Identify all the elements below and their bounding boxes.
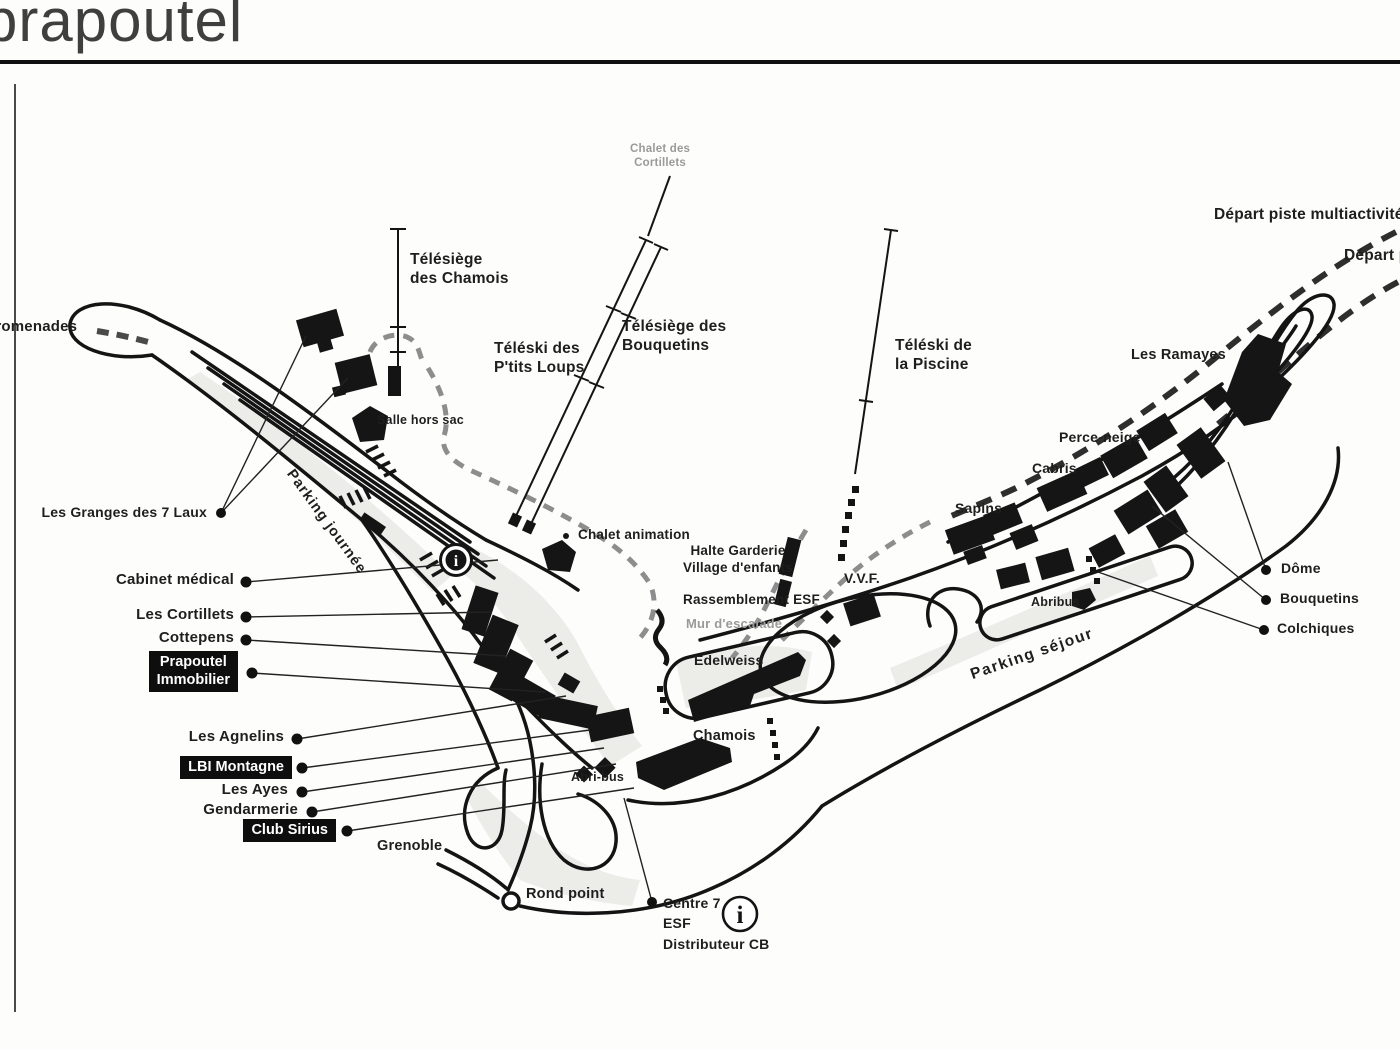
label-line: Bouquetins [622,336,726,355]
building-footprint [636,738,732,790]
bullet [247,668,258,679]
bullet [1261,595,1271,605]
label-line: ESF [663,913,769,933]
label-cabris: Cabris [1032,460,1077,478]
building-footprint [820,610,834,624]
label-telesiege-chamois: Télésiège des Chamois [410,250,509,289]
bullet [307,807,318,818]
leader [246,612,492,617]
bullet [241,612,252,623]
trail-dot [1090,567,1096,573]
label-cottepens: Cottepens [159,629,234,648]
label-chalet-animation: Chalet animation [578,527,690,544]
label-line: Village d'enfants [672,560,804,577]
label-les-granges: Les Granges des 7 Laux [42,504,207,522]
label-cabinet-medical: Cabinet médical [116,571,234,590]
label-teleski-piscine: Téléski de la Piscine [895,336,972,375]
mur-escalade-wall [655,610,666,665]
label-depart-piste: Départ piste [1344,246,1400,265]
bullet [297,763,308,774]
bullet [216,508,226,518]
leader [302,730,590,768]
label-abri-bus: Abri-bus [571,770,624,786]
lift-station [388,366,401,396]
trail-dot [840,540,847,547]
leader [302,748,604,792]
info-icon-glyph: i [454,553,459,570]
label-salle-hors-sac: Salle hors sac [377,413,464,429]
bullet [297,787,308,798]
label-centre7: Centre 7 ESF Distributeur CB [663,893,769,954]
label-sapins: Sapins [955,500,1002,518]
trail-dot [842,526,849,533]
bullet [241,635,252,646]
label-mur-escalade: Mur d'escalade [686,616,782,632]
trail-dot [848,499,855,506]
label-chalet-cortillets: Chalet des Cortillets [630,142,690,171]
label-grenoble: Grenoble [377,837,442,855]
trail-dot [852,486,859,493]
bullet [1259,625,1269,635]
label-edelweiss: Edelweiss [694,652,764,670]
label-line: Cortillets [630,156,690,170]
building-footprint [996,563,1030,590]
village-map-page: prapoutel [0,0,1400,1050]
label-telesiege-bouquetins: Télésiège des Bouquetins [622,317,726,356]
label-abribus: Abribus [1031,595,1080,611]
bullet [647,897,657,907]
label-line: Halte Garderie [672,543,804,560]
label-depart-piste-multiactivite: Départ piste multiactivité [1214,205,1400,224]
road [70,304,160,357]
label-line: Téléski des [494,339,584,358]
label-line: Prapoutel [157,653,230,671]
building-footprint [1035,548,1074,580]
trail-dot [660,697,666,703]
lift-tick [589,244,668,388]
label-les-agnelins: Les Agnelins [189,728,284,747]
label-perce-neige: Perce-neige [1059,429,1141,447]
label-teleski-ptits-loups: Téléski des P'tits Loups [494,339,584,378]
trail-dot [663,708,669,714]
label-line: Télésiège des [622,317,726,336]
label-line: des Chamois [410,269,509,288]
building-footprint [542,540,576,572]
label-chamois: Chamois [693,727,756,745]
road [438,864,498,898]
label-line: P'tits Loups [494,358,584,377]
label-les-ramayes: Les Ramayes [1131,346,1226,364]
label-line: Téléski de [895,336,972,355]
label-prapoutel-immobilier: Prapoutel Immobilier [149,651,238,692]
promenades-path [97,331,152,343]
label-line: Immobilier [157,671,230,689]
bullet [241,577,252,588]
building-footprint [1224,334,1292,426]
label-line: Distributeur CB [663,934,769,954]
parking-row [208,368,478,554]
label-line: Chalet des [630,142,690,156]
building-footprint [1203,385,1230,411]
trail-dot [838,554,845,561]
leader [1228,462,1266,570]
label-colchiques: Colchiques [1277,620,1354,638]
label-bouquetins: Bouquetins [1280,590,1359,608]
trail-dot [774,754,780,760]
label-lbi-montagne: LBI Montagne [180,756,292,779]
lift-station [508,512,522,527]
trail-dot [770,730,776,736]
label-vvf: V.V.F. [844,570,880,588]
trail-dot [767,718,773,724]
lift-station [522,519,536,534]
trail-dot [772,742,778,748]
label-promenades: promenades [0,318,77,337]
info-icon-village: i [441,545,472,576]
trail-dot [1094,578,1100,584]
trail-dot [1086,556,1092,562]
bullet [292,734,303,745]
label-gendarmerie: Gendarmerie [203,801,298,820]
trail-dot [657,686,663,692]
rond-point-circle [503,893,519,909]
trail-dot [845,512,852,519]
label-dome: Dôme [1281,560,1321,578]
label-line: Télésiège [410,250,509,269]
leader [246,640,506,656]
stairs [366,446,396,476]
label-line: Centre 7 [663,893,769,913]
label-line: la Piscine [895,355,972,374]
label-les-ayes: Les Ayes [222,781,288,800]
label-rond-point: Rond point [526,885,605,903]
map-dot [563,533,569,539]
leader [297,696,566,739]
lift-tick [574,237,653,381]
lift-line-piscine [855,230,891,474]
bullet [1261,565,1271,575]
label-les-cortillets: Les Cortillets [136,606,234,625]
bullet [342,826,353,837]
label-halte-garderie: Halte Garderie Village d'enfants [672,543,804,577]
label-rassemblement-esf: Rassemblement ESF [683,592,820,609]
shade [186,372,452,592]
label-club-sirius: Club Sirius [243,819,336,842]
lift-line-upper [648,176,670,236]
